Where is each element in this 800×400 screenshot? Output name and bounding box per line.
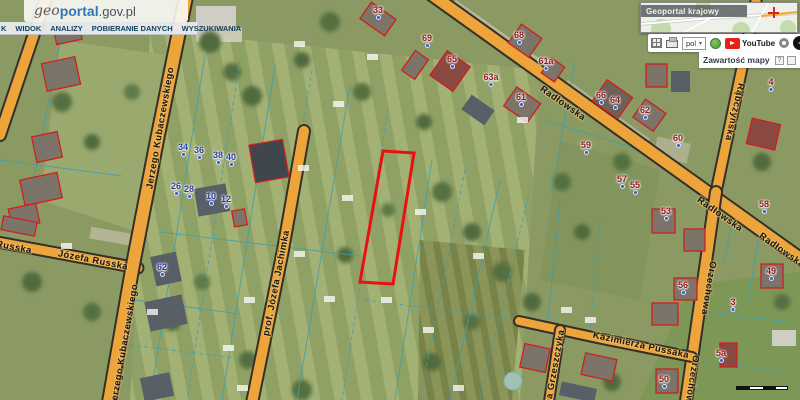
collapse-panel-icon[interactable] <box>787 56 796 65</box>
geoportal-app-window: Radłowska Radłowska Radłowska Rąbczyńska… <box>0 0 800 400</box>
menu-item-cut[interactable]: K <box>1 24 6 33</box>
language-select[interactable]: pol▾ <box>682 37 706 50</box>
chevron-down-icon: ▾ <box>699 40 702 47</box>
youtube-play-icon <box>725 38 740 49</box>
map-canvas[interactable]: Radłowska Radłowska Radłowska Rąbczyńska… <box>0 0 800 400</box>
menu-item-widok[interactable]: WIDOK <box>15 24 41 33</box>
main-menu-bar: K WIDOK ANALIZY POBIERANIE DANYCH WYSZUK… <box>0 22 197 35</box>
layers-panel-title: Zawartość mapy <box>703 55 772 65</box>
youtube-button[interactable]: YouTube <box>725 38 775 49</box>
logo-part-domain: .gov.pl <box>99 4 136 19</box>
youtube-label: YouTube <box>742 39 775 48</box>
top-toolbar: pol▾ YouTube + <box>648 34 800 52</box>
geolocation-icon[interactable] <box>710 38 721 49</box>
menu-item-analizy[interactable]: ANALIZY <box>50 24 83 33</box>
grid-tools-icon[interactable] <box>651 38 662 48</box>
help-ring-icon[interactable] <box>779 38 789 48</box>
language-value: pol <box>686 39 696 48</box>
print-icon[interactable] <box>666 40 678 48</box>
accessibility-contrast-widget[interactable]: + <box>793 36 800 50</box>
geoportal-logo[interactable]: geoportal.gov.pl <box>24 0 188 22</box>
minimap-position-marker-icon <box>768 7 779 18</box>
logo-part-geo: geo <box>34 3 60 19</box>
map-scale-bar <box>736 386 788 390</box>
layers-panel-header[interactable]: Zawartość mapy ? <box>699 52 800 68</box>
minimap-title: Geoportal krajowy <box>641 5 747 17</box>
menu-item-wyszukiwania[interactable]: WYSZUKIWANIA <box>182 24 242 33</box>
menu-item-pobieranie-danych[interactable]: POBIERANIE DANYCH <box>92 24 173 33</box>
logo-part-portal: portal <box>60 3 99 19</box>
help-icon[interactable]: ? <box>775 56 784 65</box>
overview-minimap[interactable]: Geoportal krajowy <box>640 2 798 33</box>
